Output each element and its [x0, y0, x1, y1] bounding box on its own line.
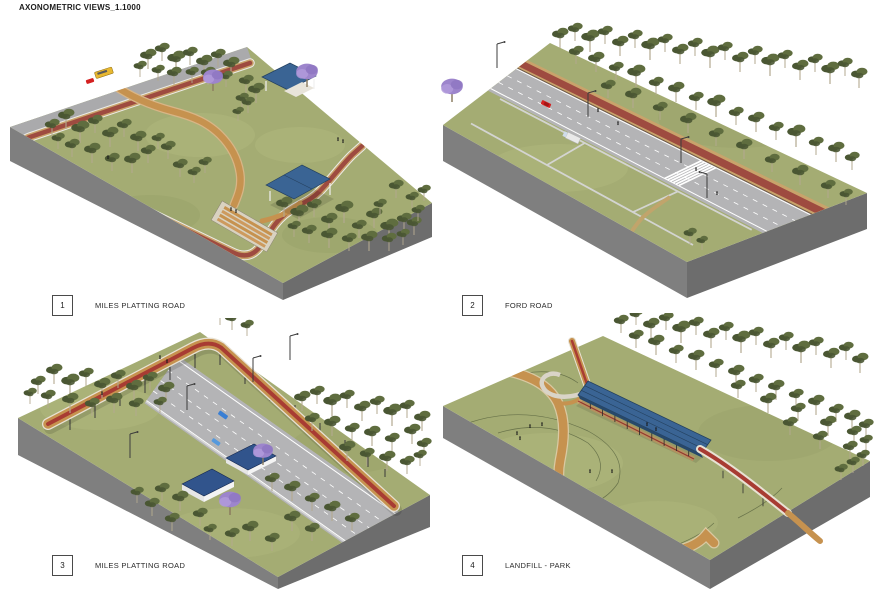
view-number-box: 2 [462, 295, 483, 316]
view-label-4: 4 LANDFILL - PARK [462, 555, 571, 576]
view-label-2: 2 FORD ROAD [462, 295, 553, 316]
view-label-text: MILES PLATTING ROAD [95, 561, 185, 570]
bus [94, 67, 113, 79]
drawing-sheet: AXONOMETRIC VIEWS_1.1000 [0, 0, 880, 593]
view-label-1: 1 MILES PLATTING ROAD [52, 295, 185, 316]
axon-view-3-miles-platting-road [10, 318, 445, 593]
view-number: 2 [470, 301, 474, 310]
view-number: 1 [60, 301, 64, 310]
view-number-box: 1 [52, 295, 73, 316]
view-number-box: 4 [462, 555, 483, 576]
jacaranda-trees [441, 79, 463, 102]
view-number: 3 [60, 561, 64, 570]
view-label-text: LANDFILL - PARK [505, 561, 571, 570]
axon-view-2-ford-road [438, 8, 880, 298]
view-number: 4 [470, 561, 474, 570]
axon-view-4-landfill-park [438, 313, 880, 593]
sheet-title: AXONOMETRIC VIEWS_1.1000 [19, 3, 141, 12]
view-label-text: FORD ROAD [505, 301, 553, 310]
car [86, 78, 95, 84]
axon-view-1-miles-platting-road [0, 25, 445, 303]
view-label-3: 3 MILES PLATTING ROAD [52, 555, 185, 576]
view-label-text: MILES PLATTING ROAD [95, 301, 185, 310]
view-number-box: 3 [52, 555, 73, 576]
